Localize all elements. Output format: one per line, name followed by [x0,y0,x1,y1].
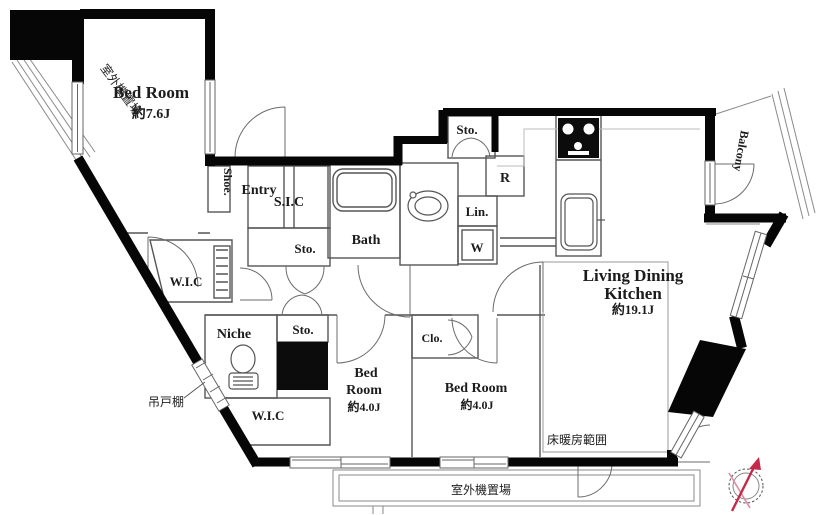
label-bath: Bath [352,233,381,248]
label-closet: Clo. [422,331,443,345]
label-bedroom-left-line2: Room [346,383,382,398]
label-sto-entry: Sto. [294,241,315,256]
label-bedroom-center-size: 約4.0J [460,397,493,412]
stove-icon [558,118,599,158]
label-ldk-size: 約19.1J [612,302,655,317]
label-bedroom-left-line1: Bed [354,366,378,381]
label-outdoor-unit-bottom: 室外機置場 [451,482,511,497]
floorplan-canvas: Bed Room 約7.6J Shoe. Entry S.I.C Sto. Ba… [0,0,823,515]
label-bedroom-left-size: 約4.0J [347,399,380,414]
label-wic-upper: W.I.C [170,274,203,289]
label-wic-lower: W.I.C [252,408,285,423]
label-fridge: R [500,171,511,186]
label-hanging-cupboard: 吊戸棚 [148,394,184,409]
kitchen-sink-icon [561,194,605,250]
washbasin-icon [408,191,448,221]
outdoor-unit-area-bottom [333,470,700,514]
label-ldk-line2: Kitchen [604,284,662,303]
label-ldk-line1: Living Dining [583,266,684,285]
toilet-icon [229,345,258,389]
hanging-cupboard-leader-line [184,382,205,398]
label-bedroom-center-name: Bed Room [445,381,508,396]
label-sic: S.I.C [274,195,304,210]
label-entry: Entry [242,183,277,198]
label-balcony: Balcony [731,129,752,172]
label-linen: Lin. [466,204,489,219]
pipe-space-box [277,342,328,390]
label-sto-hall: Sto. [292,322,313,337]
label-shoe-cabinet: Shoe. [221,168,235,196]
compass-icon [729,457,763,511]
label-niche: Niche [217,327,251,342]
label-floor-heating: 床暖房範囲 [547,432,607,447]
label-sto-kitchen: Sto. [456,122,477,137]
outer-walls [10,10,786,466]
label-washer: W [471,240,484,255]
